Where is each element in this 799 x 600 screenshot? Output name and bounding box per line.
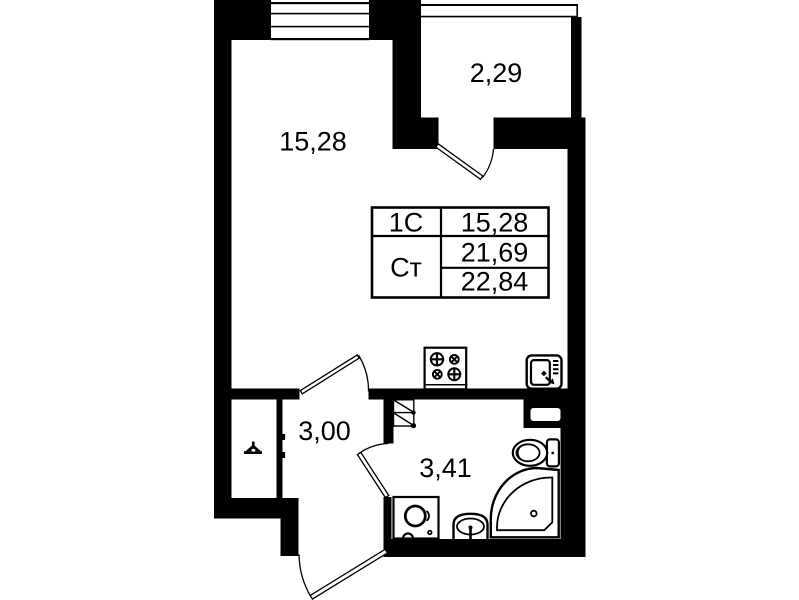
svg-text:21,69: 21,69: [461, 238, 529, 268]
svg-text:15,28: 15,28: [461, 208, 529, 238]
svg-text:3,41: 3,41: [419, 453, 472, 483]
svg-text:3,00: 3,00: [298, 416, 351, 446]
svg-text:2,29: 2,29: [470, 58, 523, 88]
svg-text:15,28: 15,28: [279, 127, 347, 157]
svg-text:Ст: Ст: [390, 253, 422, 283]
svg-text:22,84: 22,84: [461, 267, 529, 297]
svg-text:1С: 1С: [389, 208, 424, 238]
